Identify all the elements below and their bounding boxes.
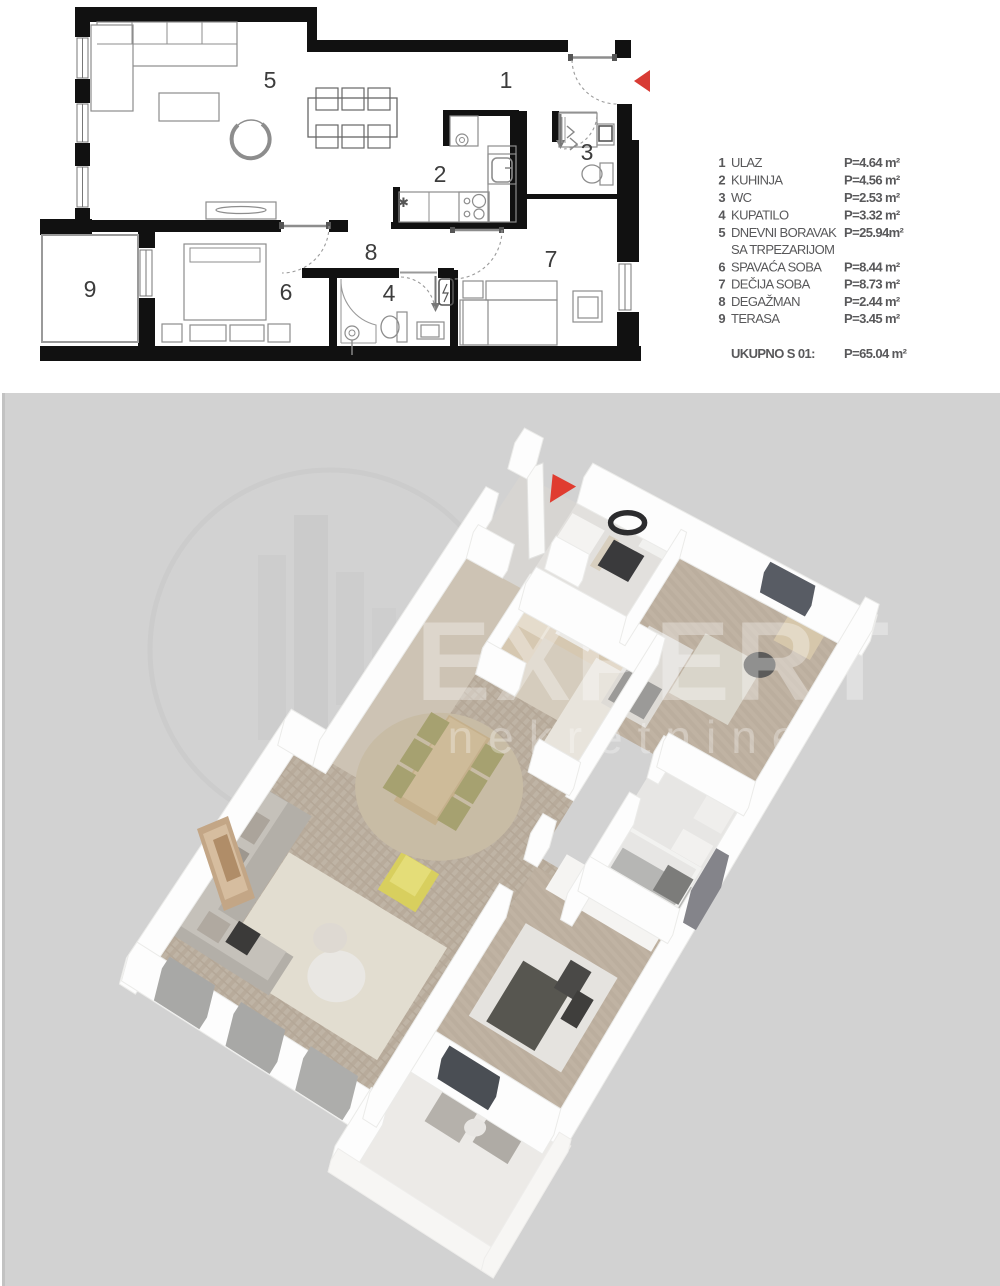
- svg-text:6: 6: [718, 260, 725, 275]
- svg-text:5: 5: [264, 67, 277, 93]
- svg-text:SPAVAĆA SOBA: SPAVAĆA SOBA: [731, 260, 822, 275]
- svg-text:UKUPNO S 01:: UKUPNO S 01:: [731, 346, 815, 361]
- svg-text:P=2.44 m²: P=2.44 m²: [844, 294, 901, 309]
- svg-text:4: 4: [383, 280, 396, 306]
- svg-text:7: 7: [718, 277, 725, 292]
- svg-text:KUHINJA: KUHINJA: [731, 173, 783, 188]
- svg-text:1: 1: [500, 67, 513, 93]
- svg-text:P=3.45 m²: P=3.45 m²: [844, 311, 901, 326]
- svg-text:6: 6: [280, 279, 293, 305]
- svg-text:7: 7: [545, 246, 558, 272]
- svg-text:P=4.56 m²: P=4.56 m²: [844, 173, 901, 188]
- svg-text:SA TRPEZARIJOM: SA TRPEZARIJOM: [731, 242, 834, 257]
- svg-text:2: 2: [434, 161, 447, 187]
- svg-text:✱: ✱: [398, 195, 409, 210]
- svg-text:P=4.64 m²: P=4.64 m²: [844, 155, 901, 170]
- svg-text:P=25.94m²: P=25.94m²: [844, 225, 905, 240]
- svg-text:8: 8: [718, 294, 725, 309]
- svg-text:5: 5: [718, 225, 725, 240]
- svg-text:P=65.04 m²: P=65.04 m²: [844, 346, 908, 361]
- svg-text:nekretnine: nekretnine: [448, 711, 813, 763]
- svg-text:ULAZ: ULAZ: [731, 155, 762, 170]
- svg-text:9: 9: [84, 276, 97, 302]
- svg-text:KUPATILO: KUPATILO: [731, 208, 789, 223]
- svg-text:WC: WC: [731, 190, 752, 205]
- svg-text:1: 1: [718, 155, 725, 170]
- svg-text:3: 3: [581, 139, 594, 165]
- svg-text:P=8.73 m²: P=8.73 m²: [844, 277, 901, 292]
- svg-text:P=8.44 m²: P=8.44 m²: [844, 260, 901, 275]
- svg-text:4: 4: [718, 208, 726, 223]
- svg-text:DEGAŽMAN: DEGAŽMAN: [731, 294, 800, 309]
- svg-text:TERASA: TERASA: [731, 311, 780, 326]
- svg-text:DEČIJA SOBA: DEČIJA SOBA: [731, 277, 811, 292]
- svg-text:3: 3: [718, 190, 725, 205]
- svg-text:9: 9: [718, 311, 725, 326]
- svg-text:DNEVNI BORAVAK: DNEVNI BORAVAK: [731, 225, 837, 240]
- svg-text:2: 2: [718, 173, 725, 188]
- svg-text:P=2.53 m²: P=2.53 m²: [844, 190, 901, 205]
- svg-text:8: 8: [365, 239, 378, 265]
- svg-text:P=3.32 m²: P=3.32 m²: [844, 208, 901, 223]
